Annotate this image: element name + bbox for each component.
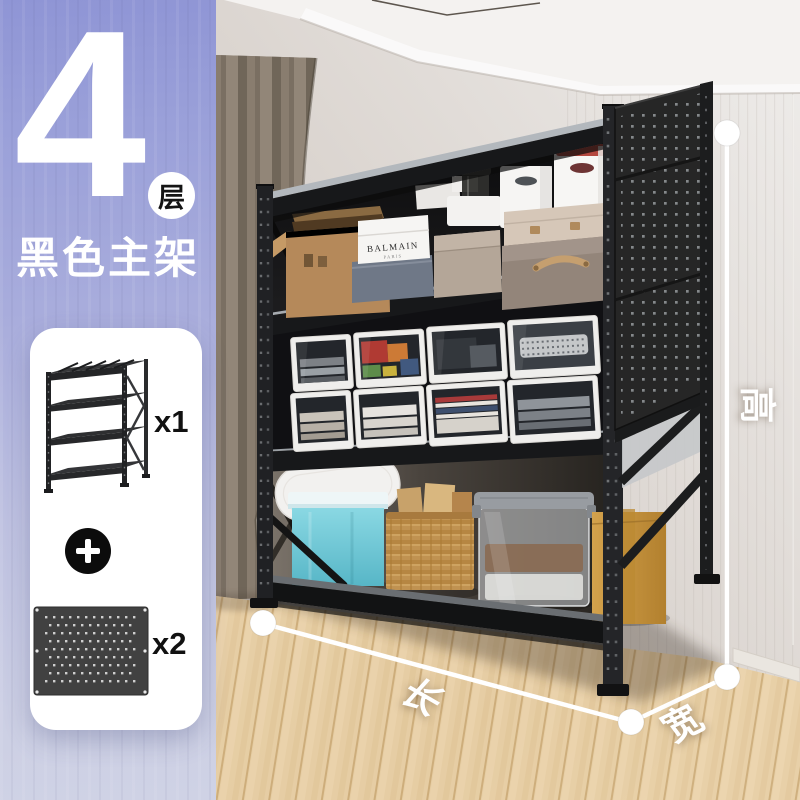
mini-shelf-thumbnail [38,348,158,498]
height-label: 高 [734,387,788,424]
balmain-shoebox-stack: BALMAIN PARIS [352,215,434,303]
product-poster: ♻ [0,0,800,800]
left-foot [250,598,278,608]
clear-storage-tote [472,492,596,606]
right-foot [597,684,629,696]
main-rack-quantity: x1 [154,404,188,440]
wicker-basket [386,483,474,590]
pegboard-thumbnail [33,606,149,696]
tan-box [434,230,502,298]
rear-foot [694,574,720,584]
tier-unit-badge: 层 [148,172,195,219]
promo-panel: 4 层 黑色主架 [0,0,216,800]
taupe-handled-box [502,203,610,310]
teal-storage-bin [288,492,388,586]
product-subtitle: 黑色主架 [16,224,200,286]
plus-icon [65,528,111,574]
bundle-card: x1 [30,328,202,730]
tier-count: 4 [14,0,146,240]
pegboard-quantity: x2 [152,626,186,662]
